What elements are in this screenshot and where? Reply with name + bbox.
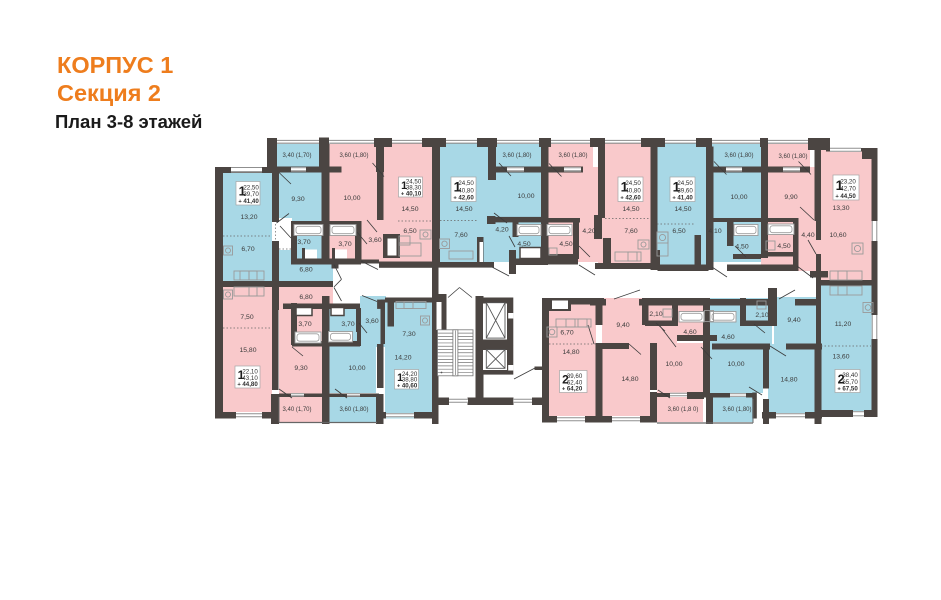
svg-text:6,50: 6,50	[672, 228, 685, 235]
svg-text:40,80: 40,80	[458, 187, 474, 194]
svg-text:14,50: 14,50	[401, 206, 418, 213]
svg-text:13,20: 13,20	[240, 214, 257, 221]
svg-text:4,40: 4,40	[801, 232, 814, 239]
svg-text:7,50: 7,50	[240, 314, 253, 321]
svg-text:41,40: 41,40	[677, 194, 693, 201]
svg-text:3,60: 3,60	[368, 237, 381, 244]
svg-text:4,50: 4,50	[559, 241, 572, 248]
svg-text:9,90: 9,90	[784, 194, 797, 201]
svg-text:3,60 (1,80): 3,60 (1,80)	[339, 407, 368, 413]
svg-text:9,30: 9,30	[291, 196, 304, 203]
svg-text:64,20: 64,20	[567, 386, 583, 393]
svg-text:42,70: 42,70	[840, 186, 856, 193]
svg-text:10,00: 10,00	[343, 195, 360, 202]
svg-text:2,10: 2,10	[755, 312, 768, 319]
svg-text:9,30: 9,30	[294, 365, 307, 372]
svg-text:4,60: 4,60	[721, 334, 734, 341]
svg-text:39,60: 39,60	[677, 187, 693, 194]
svg-text:7,60: 7,60	[454, 232, 467, 239]
svg-text:6,80: 6,80	[299, 267, 312, 274]
svg-text:2,10: 2,10	[649, 311, 662, 318]
svg-text:13,60: 13,60	[832, 354, 849, 361]
svg-text:14,50: 14,50	[674, 206, 691, 213]
svg-text:+: +	[835, 194, 839, 200]
svg-text:4,20: 4,20	[495, 227, 508, 234]
svg-text:4,50: 4,50	[735, 244, 748, 251]
svg-text:3,60 (1,80): 3,60 (1,80)	[502, 153, 531, 159]
svg-text:+: +	[620, 196, 624, 202]
svg-text:+: +	[837, 387, 841, 393]
svg-text:+: +	[397, 383, 401, 389]
svg-text:40,80: 40,80	[625, 187, 641, 194]
svg-text:3,70: 3,70	[338, 241, 351, 248]
svg-text:4,20: 4,20	[582, 228, 595, 235]
svg-text:+: +	[672, 196, 676, 202]
svg-text:41,40: 41,40	[243, 198, 259, 205]
svg-text:КОРПУС 1: КОРПУС 1	[57, 52, 173, 78]
svg-text:+: +	[562, 387, 566, 393]
svg-text:14,80: 14,80	[621, 376, 638, 383]
svg-text:24,50: 24,50	[677, 180, 693, 187]
svg-text:24,50: 24,50	[625, 180, 641, 187]
svg-text:3,60 (1,80): 3,60 (1,80)	[558, 153, 587, 159]
svg-text:3,60 (1,80): 3,60 (1,80)	[722, 407, 751, 413]
svg-text:42,60: 42,60	[625, 194, 641, 201]
svg-text:67,50: 67,50	[842, 386, 858, 393]
svg-text:7,30: 7,30	[402, 331, 415, 338]
svg-text:6,70: 6,70	[560, 330, 573, 337]
svg-text:13,30: 13,30	[832, 205, 849, 212]
svg-text:14,50: 14,50	[455, 206, 472, 213]
svg-text:6,70: 6,70	[241, 246, 254, 253]
svg-text:14,50: 14,50	[622, 206, 639, 213]
svg-text:11,20: 11,20	[835, 321, 852, 328]
svg-text:14,80: 14,80	[562, 349, 579, 356]
svg-text:4,60: 4,60	[683, 329, 696, 336]
svg-text:10,00: 10,00	[665, 361, 682, 368]
svg-text:+: +	[453, 196, 457, 202]
svg-text:3,40 (1,70): 3,40 (1,70)	[282, 153, 311, 159]
svg-text:3,70: 3,70	[341, 321, 354, 328]
svg-text:3,60 (1,80): 3,60 (1,80)	[339, 153, 368, 159]
svg-text:3,60 (1,8 0): 3,60 (1,8 0)	[668, 407, 699, 413]
svg-text:4,10: 4,10	[708, 228, 721, 235]
svg-text:23,20: 23,20	[840, 178, 856, 185]
svg-text:3,70: 3,70	[298, 321, 311, 328]
svg-text:40,60: 40,60	[402, 382, 418, 389]
svg-text:24,50: 24,50	[458, 180, 474, 187]
svg-text:3,60: 3,60	[365, 318, 378, 325]
svg-text:9,40: 9,40	[787, 317, 800, 324]
svg-text:10,60: 10,60	[829, 232, 846, 239]
svg-text:14,80: 14,80	[780, 377, 797, 384]
svg-text:44,50: 44,50	[840, 193, 856, 200]
svg-text:Секция 2: Секция 2	[57, 80, 161, 106]
svg-text:+: +	[237, 382, 241, 388]
svg-text:10,00: 10,00	[517, 193, 534, 200]
svg-text:3,60 (1,80): 3,60 (1,80)	[778, 154, 807, 160]
svg-text:44,80: 44,80	[242, 381, 258, 388]
svg-text:10,00: 10,00	[348, 365, 365, 372]
svg-text:15,80: 15,80	[239, 347, 256, 354]
svg-text:7,60: 7,60	[624, 228, 637, 235]
svg-text:4,50: 4,50	[517, 241, 530, 248]
svg-text:42,60: 42,60	[458, 194, 474, 201]
svg-text:План 3-8 этажей: План 3-8 этажей	[55, 111, 202, 132]
svg-text:6,80: 6,80	[299, 294, 312, 301]
svg-text:40,10: 40,10	[406, 190, 422, 197]
svg-text:4,50: 4,50	[777, 243, 790, 250]
svg-text:+: +	[401, 191, 405, 197]
svg-text:3,40 (1,70): 3,40 (1,70)	[282, 407, 311, 413]
svg-text:+: +	[238, 199, 242, 205]
svg-text:10,00: 10,00	[730, 194, 747, 201]
svg-text:3,60 (1,80): 3,60 (1,80)	[724, 153, 753, 159]
svg-text:14,20: 14,20	[394, 355, 411, 362]
svg-text:6,50: 6,50	[403, 228, 416, 235]
svg-text:10,00: 10,00	[727, 361, 744, 368]
svg-text:9,40: 9,40	[616, 322, 629, 329]
svg-text:3,70: 3,70	[297, 239, 310, 246]
